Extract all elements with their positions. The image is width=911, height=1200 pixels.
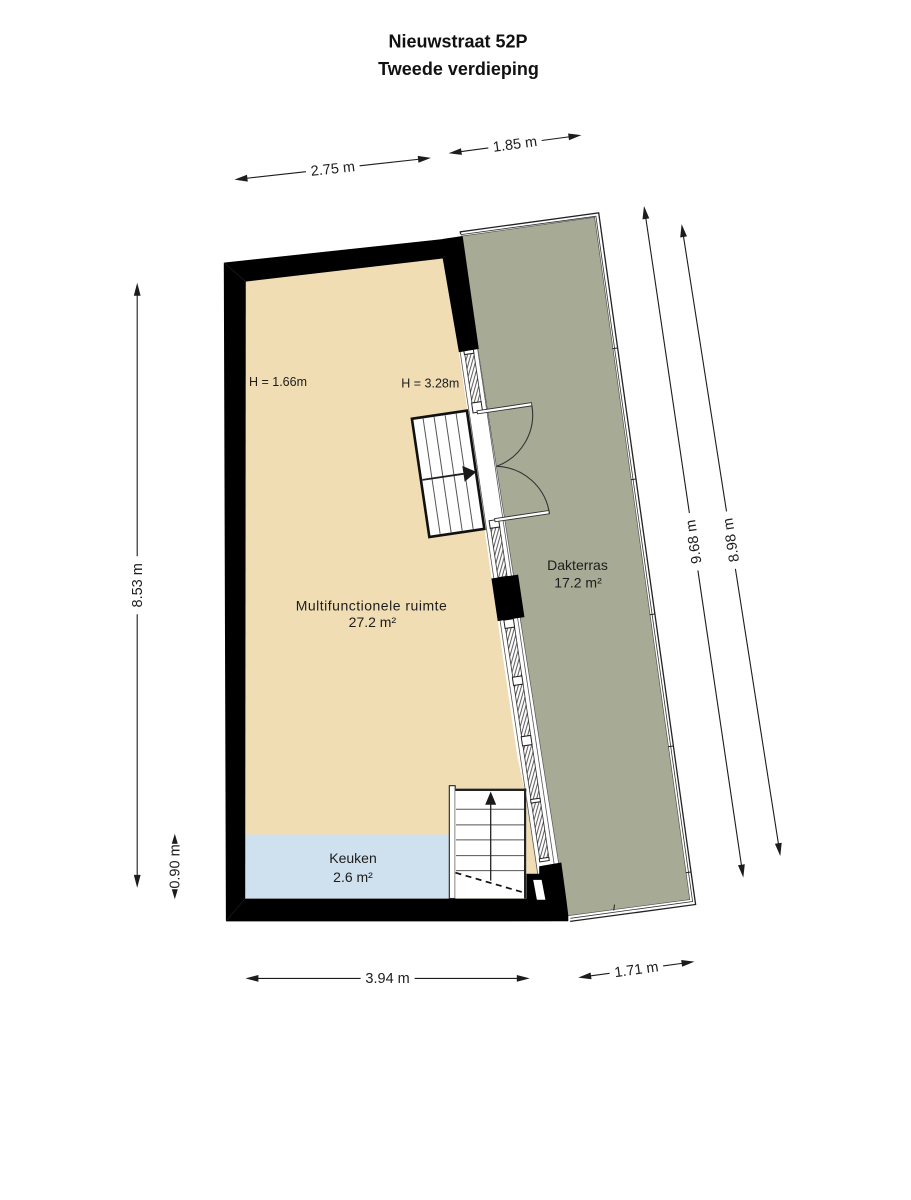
svg-text:Keuken: Keuken xyxy=(329,850,376,866)
svg-text:9.68 m: 9.68 m xyxy=(683,519,705,565)
svg-text:1.71 m: 1.71 m xyxy=(613,959,659,981)
svg-text:Tweede verdieping: Tweede verdieping xyxy=(378,59,539,79)
svg-text:Multifunctionele ruimte: Multifunctionele ruimte xyxy=(296,598,448,614)
svg-text:2.6 m²: 2.6 m² xyxy=(333,869,373,885)
svg-text:3.94 m: 3.94 m xyxy=(365,971,409,987)
svg-text:1.85 m: 1.85 m xyxy=(492,134,538,156)
svg-text:8.98 m: 8.98 m xyxy=(720,517,743,563)
svg-text:8.53 m: 8.53 m xyxy=(130,563,146,607)
svg-text:H = 1.66m: H = 1.66m xyxy=(249,375,307,389)
svg-text:Dakterras: Dakterras xyxy=(547,557,608,573)
svg-text:2.75 m: 2.75 m xyxy=(310,159,356,180)
svg-text:H = 3.28m: H = 3.28m xyxy=(401,376,459,390)
svg-text:17.2 m²: 17.2 m² xyxy=(554,575,602,591)
svg-text:Nieuwstraat 52P: Nieuwstraat 52P xyxy=(388,32,527,52)
svg-text:0.90 m: 0.90 m xyxy=(168,844,184,888)
svg-text:27.2 m²: 27.2 m² xyxy=(349,614,397,630)
